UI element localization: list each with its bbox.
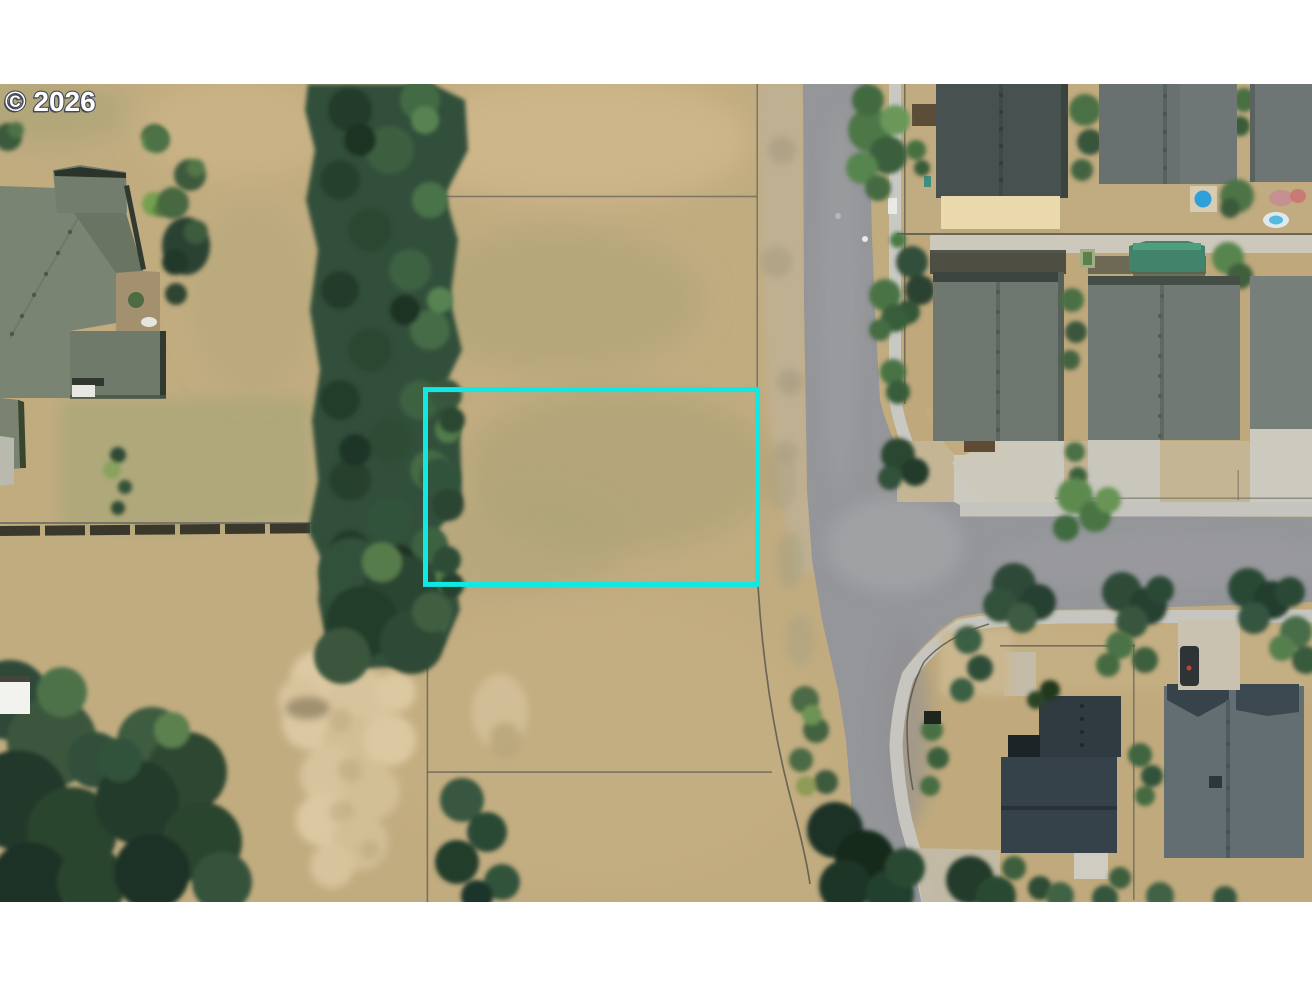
svg-text:© 2026: © 2026 [5, 86, 96, 117]
